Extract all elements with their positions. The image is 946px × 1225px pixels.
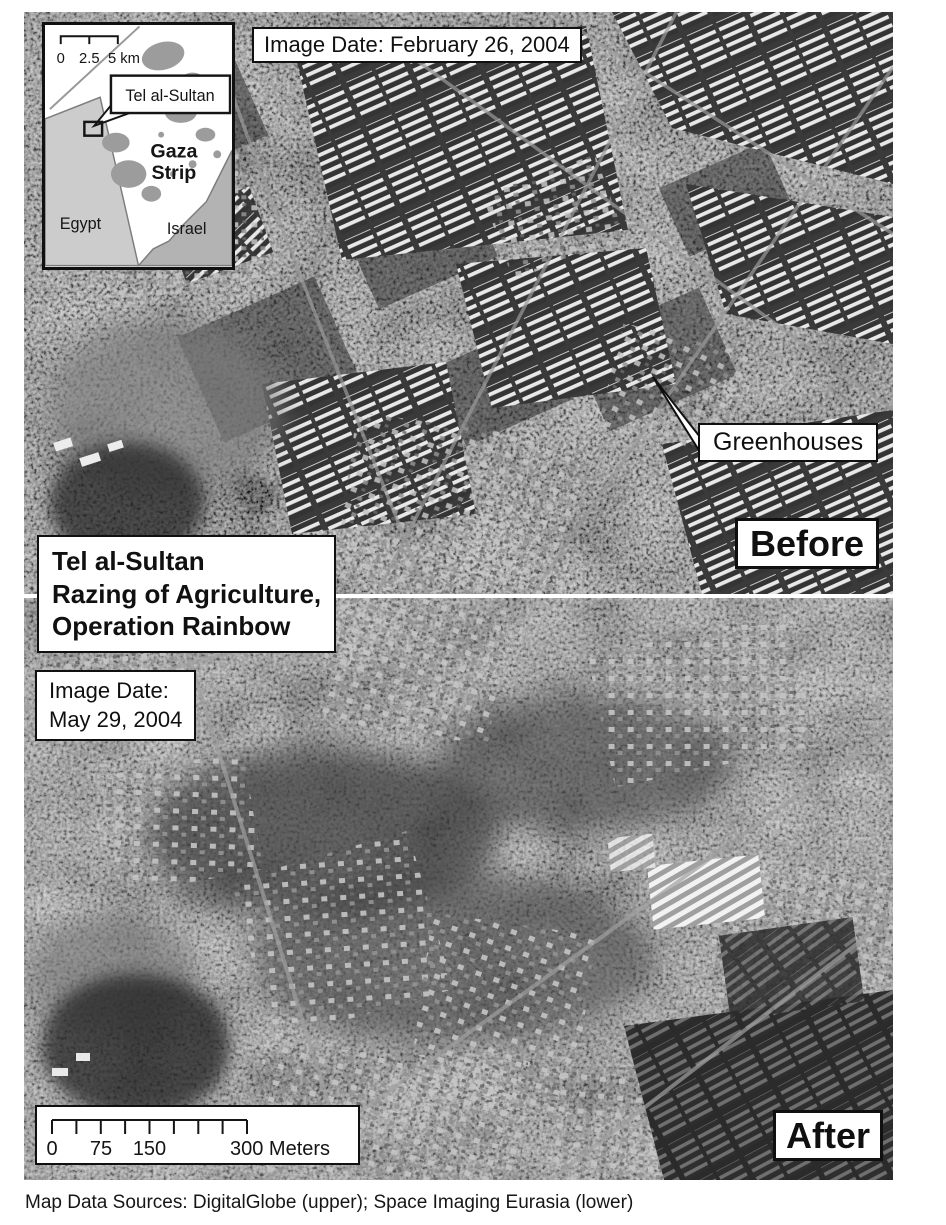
title-line-1: Tel al-Sultan	[52, 545, 321, 578]
after-image-panel: Image Date: May 29, 2004 0 75 150 300 Me…	[24, 598, 893, 1180]
egypt-label: Egypt	[60, 215, 102, 233]
scale-ruler	[52, 1120, 247, 1134]
greenhouses-label: Greenhouses	[698, 423, 878, 462]
gaza-strip-label-line1: Gaza	[150, 140, 198, 162]
after-image-date-line2: May 29, 2004	[49, 706, 182, 735]
inset-scale-tick-mid: 2.5	[79, 51, 100, 67]
tel-al-sultan-callout-label: Tel al-Sultan	[125, 87, 214, 105]
scale-tick-0: 0	[46, 1138, 57, 1160]
title-box: Tel al-Sultan Razing of Agriculture, Ope…	[37, 535, 336, 653]
caption: Map Data Sources: DigitalGlobe (upper); …	[25, 1192, 633, 1214]
before-badge: Before	[735, 518, 879, 569]
scale-tick-300: 300 Meters	[230, 1138, 330, 1160]
inset-scale-tick-end: 5 km	[108, 51, 140, 67]
inset-map-svg: 0 2.5 5 km Tel al-Sultan Gaza Strip Egyp…	[45, 25, 232, 267]
after-image-date-line1: Image Date:	[49, 677, 182, 706]
before-image-panel: 0 2.5 5 km Tel al-Sultan Gaza Strip Egyp…	[24, 12, 893, 594]
meters-scale-bar: 0 75 150 300 Meters	[35, 1105, 360, 1165]
scale-tick-150: 150	[133, 1138, 166, 1160]
title-line-2: Razing of Agriculture,	[52, 578, 321, 611]
israel-label: Israel	[167, 220, 207, 238]
before-image-date-label: Image Date: February 26, 2004	[252, 27, 582, 63]
gaza-strip-label-line2: Strip	[152, 162, 197, 184]
scale-tick-75: 75	[90, 1138, 112, 1160]
after-image-date-label: Image Date: May 29, 2004	[35, 670, 196, 741]
inset-scale-tick-0: 0	[57, 51, 65, 67]
after-badge: After	[773, 1110, 883, 1161]
figure-page: 0 2.5 5 km Tel al-Sultan Gaza Strip Egyp…	[0, 0, 946, 1225]
title-line-3: Operation Rainbow	[52, 610, 321, 643]
inset-locator-map: 0 2.5 5 km Tel al-Sultan Gaza Strip Egyp…	[42, 22, 235, 270]
